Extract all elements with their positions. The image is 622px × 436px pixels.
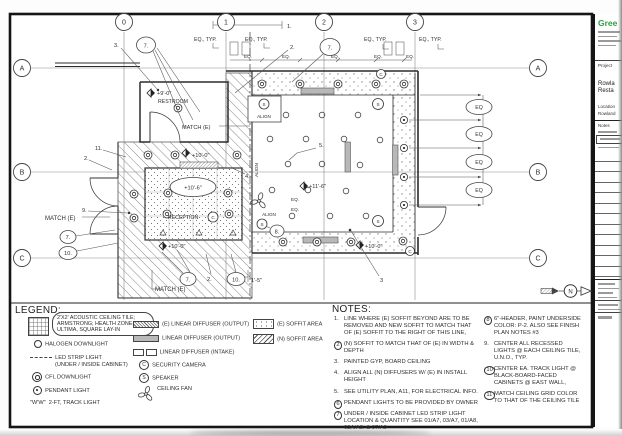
address-line [598,45,616,47]
legend-item-speaker: S SPEAKER [139,373,179,383]
note-number: 8 [484,316,492,325]
legend-item-soffit-e: (E) SOFFIT AREA [253,319,322,329]
callout-4: 4. [245,174,250,180]
note-number: 3. [334,359,339,366]
note-text: LINE WHERE (E) SOFFIT BEYOND ARE TO BE R… [344,316,471,336]
speaker-letter: S [376,219,379,224]
eq-label: EQ. [282,54,290,59]
notes-title: NOTES: [332,304,585,316]
eq-typ-label: EQ., TYP. [245,37,268,43]
note-text: (N) SOFFIT TO MATCH THAT OF (E) IN WIDTH… [344,341,474,354]
note-text: ALIGN ALL (N) DIFFUSERS W/ (E) IN INSTAL… [344,370,467,383]
elevation-10-0: +10'-0" [365,244,383,250]
legend-label: PENDANT LIGHT [45,388,90,394]
address-line [598,36,617,38]
soffit-new-swatch [253,334,274,344]
callout-2: 2. [207,277,212,283]
eq-cloud: EQ [475,160,483,166]
note-item: 9.CENTER ALL RECESSED LIGHTS @ EACH CEIL… [484,341,584,361]
eq-cloud: EQ [475,105,483,111]
grid-col-2: 2 [322,20,326,27]
address-line [598,31,620,33]
grid-col-3: 3 [413,20,417,27]
restroom-label: RESTROOM [158,99,188,105]
note-text: UNDER / INSIDE CABINET LED STRIP LIGHT L… [344,411,478,431]
ceiling-fan-icon [138,386,154,402]
note-text: MATCH CEILING GRID COLOR TO THAT OF THE … [494,391,579,404]
revision-line [598,131,617,133]
callout-1: 1. [287,24,292,30]
callout-3: 3. [114,43,119,49]
note-item: 4.ALIGN ALL (N) DIFFUSERS W/ (E) IN INST… [334,370,480,384]
legend-item-halogen: HALOGEN DOWNLIGHT [34,340,108,348]
callout-2: 2. [84,156,89,162]
legend-item-camera: C SECURITY CAMERA [139,360,206,370]
soffit-existing-swatch [253,319,274,329]
callout-7-cloud: 7. [144,44,149,50]
sheet-number-line [598,316,612,319]
grid-row-c-left: C [19,256,24,263]
scan-shadow [190,431,430,435]
legend-label: CFL DOWNLIGHT [45,374,91,380]
align-label: ALIGN [262,212,276,217]
legend-label: LED STRIP LIGHT [55,355,102,361]
revision-line [600,138,620,140]
dim-1-5: 1'-5" [251,278,262,284]
scan-edge-right [618,0,622,436]
eq-label: EQ. [291,197,299,202]
legend-label: LINEAR DIFFUSER (INTAKE) [160,350,235,356]
elevation-10-6-cloud: +10'-6" [184,186,202,192]
speaker-letter: S [262,102,265,107]
legend-item-cfl: CFL DOWNLIGHT [32,372,91,382]
eq-typ-label: EQ., TYP. [364,37,387,43]
elevation-10-0: +10'-0" [168,244,186,250]
note-number: 11 [484,391,495,400]
legend-label: (N) SOFFIT AREA [277,336,323,342]
note-text: 6"-HEADER, PAINT UNDERSIDE COLOR: P-2. A… [494,316,581,336]
legend-item-diffuser-out: LINEAR DIFFUSER (OUTPUT) [133,335,240,342]
note-item: 10CENTER EA. TRACK LIGHT @ BLACK-BOARD-F… [484,366,584,386]
led-strip-icon [30,357,52,358]
security-camera-icon: C [139,360,149,370]
eq-typ-label: EQ., TYP. [419,37,442,43]
field-line [598,288,619,290]
align-label: ALIGN [257,114,271,119]
note-item: 1.LINE WHERE (E) SOFFIT BEYOND ARE TO BE… [334,316,480,336]
legend-tile-note-line3: ULTIMA, SQUARE LAY-IN [57,327,149,333]
field-line [598,297,617,299]
note-item: 3.PAINTED GYP, BOARD CEILING [334,359,480,366]
eq-label: EQ. [406,54,414,59]
diffuser-existing-icon [133,321,159,328]
eq-typ-label: EQ., TYP. [194,37,217,43]
grid-row-a-right: A [536,66,541,73]
legend-label: LINEAR DIFFUSER (OUTPUT) [162,336,240,342]
note-text: PENDANT LIGHTS TO BE PROVIDED BY OWNER [344,400,478,406]
callout-5: 5. [319,143,324,149]
grid-row-c-right: C [535,256,540,263]
note-text: CENTER EA. TRACK LIGHT @ BLACK-BOARD-FAC… [494,366,576,386]
note-number: 9. [484,341,489,348]
note-number: 5. [334,389,339,396]
note-item: 2(N) SOFFIT TO MATCH THAT OF (E) IN WIDT… [334,341,480,355]
callout-8: 8. [275,230,280,236]
sheet: 0 1 2 3 A B C A B C 3. 7. EQ., TYP. EQ.,… [0,0,622,436]
legend-label: (E) LINEAR DIFFUSER (OUTPUT) [162,322,249,328]
note-item: 6PENDANT LIGHTS TO BE PROVIDED BY OWNER [334,400,480,407]
match-e-label: MATCH (E) [155,287,186,293]
eq-label: EQ. [331,54,339,59]
note-number: 4. [334,370,339,377]
revision-line [598,147,619,149]
legend-label: SECURITY CAMERA [152,362,206,368]
legend-item-soffit-n: (N) SOFFIT AREA [253,334,323,344]
grid-row-b-left: B [20,170,25,177]
speaker-letter: S [260,222,263,227]
callout-11: 11. [95,146,103,152]
callout-10: 10. [232,278,240,284]
callout-9: 9. [82,208,87,214]
callout-7: 7. [66,235,71,241]
note-number: 1. [334,316,339,323]
legend-item-led-strip: LED STRIP LIGHT [30,355,102,361]
sheet-title-line [598,304,618,306]
diffuser-intake-icon [146,349,157,356]
elevation-9-0: +9'-0" [157,91,171,97]
eq-label: EQ. [374,54,382,59]
callout-10: 10. [64,251,72,257]
note-number: 10 [484,366,495,375]
legend-label: CEILING FAN [157,386,192,392]
eq-label: EQ. [244,54,252,59]
eq-label: EQ. [291,207,299,212]
grid-row-a-left: A [20,66,25,73]
notes-left-column: 1.LINE WHERE (E) SOFFIT BEYOND ARE TO BE… [334,316,480,436]
speaker-letter: S [376,102,379,107]
note-number: 2 [334,341,342,350]
grid-row-b-right: B [536,170,541,177]
note-text: PAINTED GYP, BOARD CEILING [344,359,430,365]
callout-7-cloud: 7. [328,46,333,52]
track-light-icon: "W'W" [30,400,46,406]
match-e-label: MATCH (E) [182,125,211,131]
callout-3: 3 [380,278,383,284]
legend-item-led-strip-2: (UNDER / INSIDE CABINET) [55,362,128,368]
grid-col-0: 0 [122,20,126,27]
diffuser-intake-icon [133,349,144,356]
note-number: 7 [334,411,342,420]
match-e-label: MATCH (E) [45,216,76,222]
note-number: 6 [334,400,342,409]
notes-right-column: 86"-HEADER, PAINT UNDERSIDE COLOR: P-2. … [484,316,584,409]
field-line [598,283,615,285]
field-line [598,292,613,294]
callout-7: 7. [186,278,191,284]
legend-label: 2-FT, TRACK LIGHT [49,400,100,406]
eq-cloud: EQ [475,188,483,194]
elevation-10-0: +10'-0" [192,153,210,159]
notes-panel: NOTES: 1.LINE WHERE (E) SOFFIT BEYOND AR… [332,304,585,424]
cfl-downlight-icon [32,372,42,382]
legend-label: (E) SOFFIT AREA [277,321,322,327]
align-label-vertical: ALIGN [254,163,259,177]
callout-2: 2. [290,45,295,51]
legend-item-track: "W'W" 2-FT, TRACK LIGHT [30,400,100,406]
diffuser-output-icon [133,335,159,342]
legend-label: SPEAKER [152,375,178,381]
legend-tile-swatch [28,317,49,336]
eq-cloud: EQ [475,132,483,138]
halogen-downlight-icon [34,340,42,348]
note-item: 5.SEE UTILITY PLAN, A11, FOR ELECTRICAL … [334,389,480,396]
elevation-11-6: +11'-6" [309,184,326,190]
pendant-light-icon [33,386,42,395]
legend-label: (UNDER / INSIDE CABINET) [55,362,128,368]
speaker-icon: S [139,373,149,383]
note-item: 11MATCH CEILING GRID COLOR TO THAT OF TH… [484,391,584,405]
grid-col-1: 1 [224,20,228,27]
legend-label: HALOGEN DOWNLIGHT [45,341,108,347]
legend-item-pendant: PENDANT LIGHT [33,386,90,395]
note-item: 86"-HEADER, PAINT UNDERSIDE COLOR: P-2. … [484,316,584,336]
reception-label: RECEPTION [168,215,199,221]
note-text: CENTER ALL RECESSED LIGHTS @ EACH CEILIN… [494,341,580,361]
legend-item-diffuser-in: LINEAR DIFFUSER (INTAKE) [133,349,234,356]
north-label: N [568,289,572,295]
legend-item-diffuser-e: (E) LINEAR DIFFUSER (OUTPUT) [133,321,249,328]
note-text: SEE UTILITY PLAN, A11, FOR ELECTRICAL IN… [344,389,478,395]
legend-item-fan: CEILING FAN [138,386,192,402]
